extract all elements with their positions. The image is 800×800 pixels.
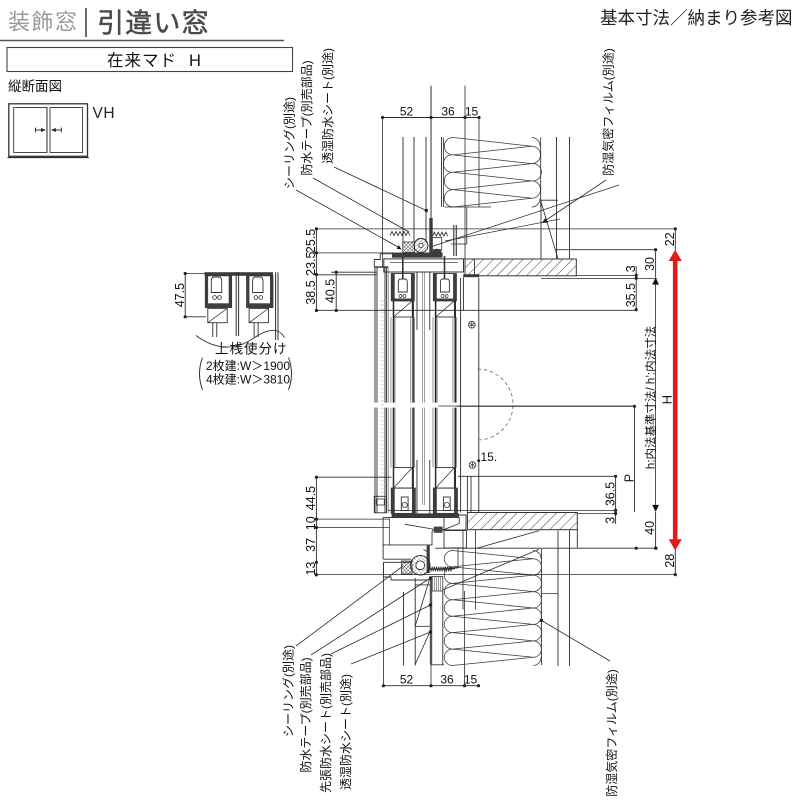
- svg-text:36.5: 36.5: [604, 482, 618, 506]
- svg-text:3: 3: [604, 517, 618, 524]
- svg-text:h:内法基準寸法/ h’:内法寸法: h:内法基準寸法/ h’:内法寸法: [644, 326, 658, 469]
- svg-text:52: 52: [400, 104, 414, 118]
- svg-text:上桟使分け: 上桟使分け: [215, 341, 288, 357]
- svg-text:VH: VH: [93, 105, 116, 122]
- svg-text:15: 15: [465, 104, 479, 118]
- svg-text:縦断面図: 縦断面図: [8, 79, 62, 94]
- svg-text:30: 30: [643, 257, 657, 271]
- svg-text:35.5: 35.5: [624, 283, 638, 307]
- svg-text:シーリング(別途): シーリング(別途): [282, 97, 297, 189]
- svg-text:36: 36: [440, 673, 454, 687]
- svg-text:23.5: 23.5: [304, 251, 318, 275]
- svg-text:36: 36: [441, 104, 455, 118]
- svg-text:44.5: 44.5: [304, 486, 318, 510]
- svg-text:透湿防水シート(別途): 透湿防水シート(別途): [338, 674, 353, 790]
- svg-text:P: P: [622, 474, 636, 482]
- svg-text:28: 28: [663, 554, 677, 568]
- svg-text:13: 13: [304, 562, 318, 576]
- svg-text:40.5: 40.5: [324, 279, 338, 303]
- svg-text:40: 40: [643, 521, 657, 535]
- svg-text:防湿気密フィルム(別途): 防湿気密フィルム(別途): [604, 669, 619, 797]
- svg-text:先張防水シート(別売部品): 先張防水シート(別売部品): [318, 653, 333, 793]
- svg-text:装飾窓: 装飾窓: [8, 10, 79, 35]
- svg-text:10: 10: [304, 516, 318, 530]
- svg-text:52: 52: [400, 673, 414, 687]
- svg-text:H: H: [189, 52, 201, 70]
- svg-text:15: 15: [464, 673, 478, 687]
- svg-text:引違い窓: 引違い窓: [97, 9, 210, 39]
- svg-text:2枚建:W＞1900: 2枚建:W＞1900: [206, 358, 290, 373]
- svg-text:37: 37: [304, 538, 318, 552]
- svg-text:防水テープ(別売部品): 防水テープ(別売部品): [298, 657, 313, 772]
- svg-text:38.5: 38.5: [304, 280, 318, 304]
- svg-text:防湿気密フィルム(別途): 防湿気密フィルム(別途): [601, 48, 616, 176]
- svg-text:4枚建:W＞3810: 4枚建:W＞3810: [206, 372, 290, 387]
- svg-text:在来マド: 在来マド: [107, 51, 177, 70]
- svg-text:3: 3: [624, 265, 638, 272]
- svg-text:基本寸法／納まり参考図: 基本寸法／納まり参考図: [600, 8, 793, 28]
- svg-text:シーリング(別途): シーリング(別途): [281, 645, 296, 737]
- svg-text:透湿防水シート(別途): 透湿防水シート(別途): [320, 48, 335, 164]
- svg-text:15.: 15.: [481, 450, 498, 464]
- svg-text:防水テープ(別売部品): 防水テープ(別売部品): [299, 60, 314, 175]
- svg-text:47.5: 47.5: [173, 283, 187, 307]
- svg-text:H: H: [660, 395, 675, 404]
- svg-text:25.5: 25.5: [304, 229, 318, 253]
- svg-text:22: 22: [663, 232, 677, 246]
